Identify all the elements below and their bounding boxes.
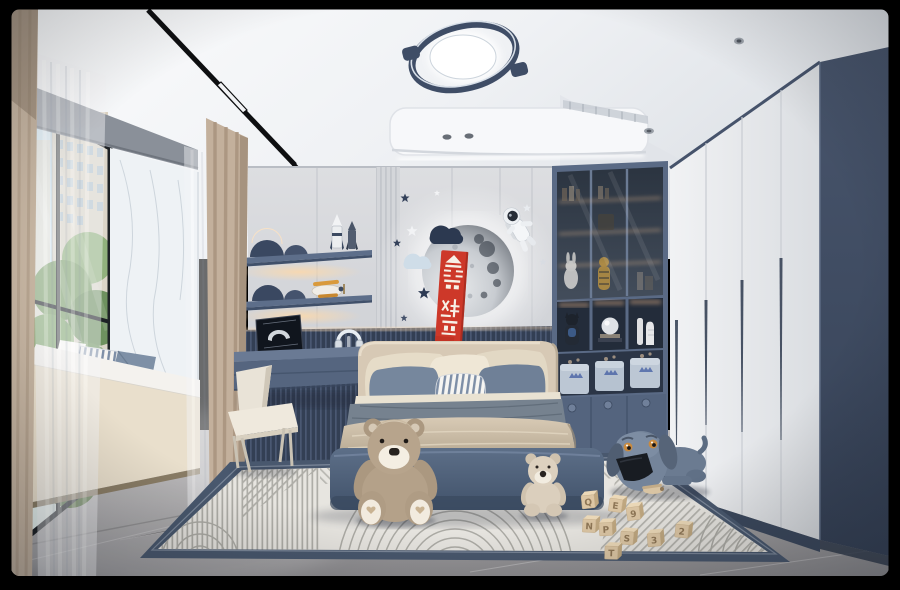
scene-canvas: Q N E 9 P S 3 T 2 — [0, 0, 900, 590]
kids-bedroom-render: Q N E 9 P S 3 T 2 鑫煋 — [0, 0, 900, 590]
vignette — [11, 9, 889, 576]
